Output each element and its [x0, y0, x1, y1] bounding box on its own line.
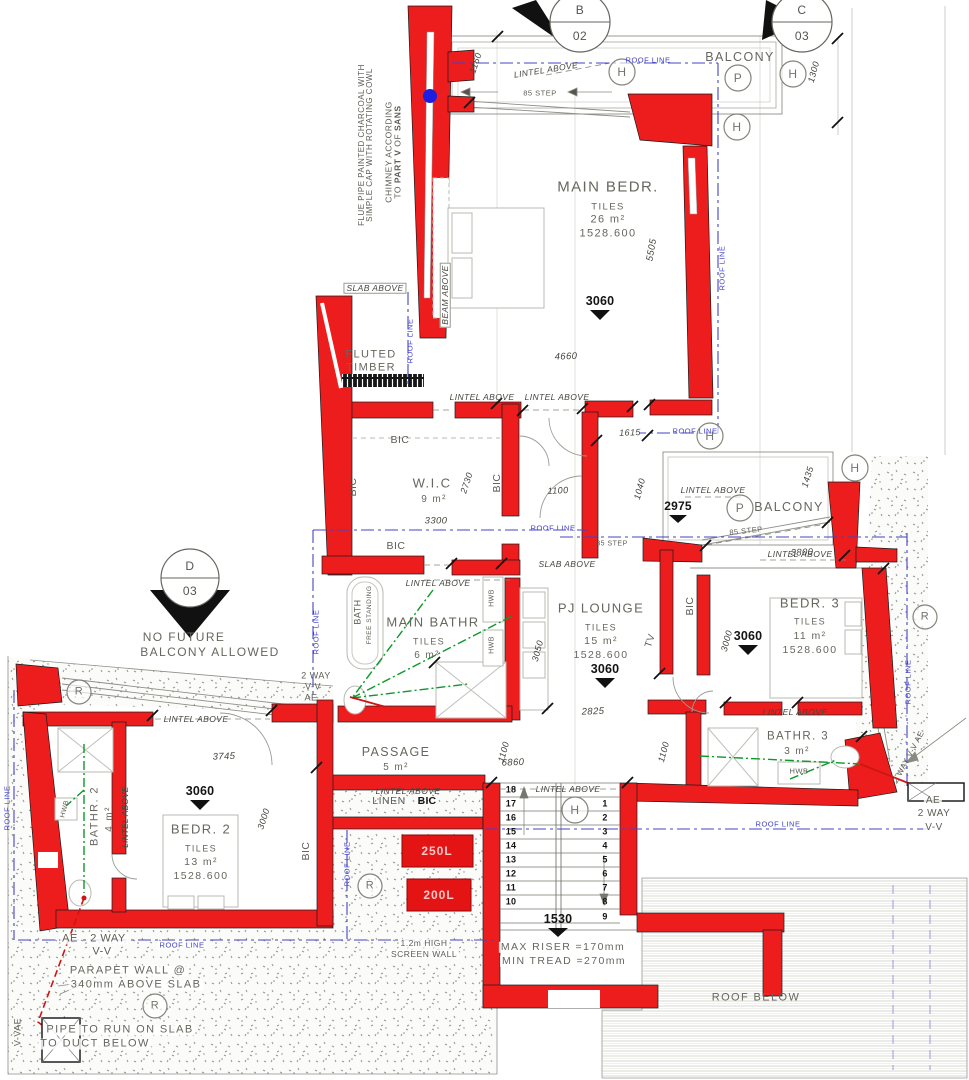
beam-above: BEAM ABOVE [440, 262, 451, 327]
bic-label: BIC [685, 596, 696, 615]
room-area: 5 m² [383, 763, 409, 773]
bic-label: BIC [386, 541, 405, 552]
room-label-wic: W.I.C [413, 477, 452, 490]
room-label-pj-lounge: PJ LOUNGE [558, 602, 644, 615]
ref-p: P [734, 72, 743, 84]
roof-line-label: ROOF LINE [718, 246, 726, 291]
level-2975: 2975 [664, 500, 692, 512]
room-area: 3 m² [784, 747, 810, 757]
tank-200l: 200L [423, 889, 454, 901]
dim-2825: 2825 [581, 707, 604, 717]
note-max-riser: MAX RISER =170mm [499, 942, 627, 953]
room-finish: TILES [413, 638, 445, 647]
stair-number: 15 [506, 828, 516, 837]
floor-plan: B 02 C 03 D 03 P P H H H H H H R R R R M… [0, 0, 969, 1080]
stair-number: 6 [602, 870, 607, 879]
roof-line-label: ROOF LINE [312, 610, 320, 655]
note-pipe-1: PIPE TO RUN ON SLAB [44, 1025, 195, 1036]
room-finish: TILES [591, 202, 624, 212]
lintel-above: LINTEL ABOVE [768, 550, 833, 559]
stair-number: 3 [602, 828, 607, 837]
stair-number: 4 [602, 842, 607, 851]
lintel-above: LINTEL ABOVE [450, 393, 515, 402]
note-chimney: CHIMNEY ACCORDING TO PART V OF SANS [385, 101, 402, 202]
roof-line-label: ROOF LINE [531, 524, 576, 532]
note-flue-line2: SIMPLE CAP WITH ROTATING COWL [366, 64, 374, 226]
vent-ae: AE [304, 694, 317, 703]
dim-3745: 3745 [212, 752, 235, 762]
bic-label: BIC [418, 796, 437, 807]
room-label-main-bath: MAIN BATHR [386, 616, 479, 629]
room-label-passage: PASSAGE [362, 746, 431, 759]
stair-number: 9 [602, 913, 607, 922]
section-marker-b-num: 02 [573, 30, 587, 42]
bic-label: BIC [492, 473, 503, 492]
note-parapet-1: PARAPET WALL @ [68, 966, 188, 977]
roof-line-label: ROOF LINE [904, 660, 912, 705]
roof-line-label: ROOF LINE [673, 427, 718, 435]
ref-r: R [921, 612, 929, 623]
note-fluted-2: TIMBER [346, 363, 396, 374]
lintel-above: LINTEL ABOVE [406, 579, 471, 588]
ref-r: R [75, 687, 83, 698]
room-level: 1528.600 [579, 229, 636, 240]
stair-number: 16 [506, 814, 516, 823]
stair-number: 14 [506, 842, 516, 851]
note-no-future-2: BALCONY ALLOWED [140, 646, 280, 658]
roof-line-label: ROOF LINE [3, 786, 11, 831]
note-fluted-1: FLUTED [345, 350, 396, 361]
room-label-balcony-right: BALCONY [754, 501, 824, 514]
dim-1615: 1615 [619, 428, 641, 438]
stair-number: 11 [506, 884, 516, 893]
hwb-label: HWB [790, 767, 809, 775]
stair-number: 2 [602, 814, 607, 823]
room-label-bedr3: BEDR. 3 [780, 597, 840, 610]
note-parapet-2: 340mm ABOVE SLAB [69, 980, 204, 991]
note-roof-below: ROOF BELOW [712, 993, 801, 1004]
hwb-label: HWB [489, 636, 496, 654]
stair-number: 12 [506, 870, 516, 879]
plan-linework [0, 0, 969, 1080]
stair-number: 18 [506, 786, 516, 795]
ref-r: R [366, 881, 374, 892]
ref-r: R [151, 1001, 159, 1012]
note-screen-2: SCREEN WALL [389, 950, 459, 959]
level-3060: 3060 [186, 785, 215, 798]
section-marker-d-letter: D [185, 560, 194, 572]
hwb-label: HWB [489, 589, 496, 607]
vent-vv: V-V [923, 823, 945, 833]
roof-line-label: ROOF LINE [626, 56, 671, 64]
note-flue: FLUE PIPE PAINTED CHARCOAL WITH SIMPLE C… [358, 64, 374, 226]
room-area: 6 m² [414, 651, 440, 661]
dim-4660: 4660 [554, 352, 577, 362]
vent-ae: AE [60, 934, 80, 945]
linen-label: LINEN [372, 796, 405, 807]
wc-bathr2 [69, 880, 91, 906]
vent-vv: V-V [90, 947, 113, 958]
vent-ae: AE [924, 796, 942, 806]
room-label-main-bedr: MAIN BEDR. [557, 180, 659, 195]
stair-number: 13 [506, 856, 516, 865]
level-1530: 1530 [544, 913, 573, 926]
note-no-future-1: NO FUTURE [143, 631, 226, 643]
room-area: 26 m² [590, 215, 625, 226]
ref-p: P [736, 502, 745, 514]
vent-vvae: V-VAE [14, 1018, 23, 1046]
vent-2way: 2 WAY [88, 934, 128, 945]
lintel-above: LINTEL ABOVE [536, 785, 601, 794]
room-label-bathr2: BATHR. 2 [90, 786, 101, 846]
section-markers [150, 0, 832, 638]
lintel-above: LINTEL ABOVE [763, 708, 828, 717]
bic-label: BIC [301, 841, 312, 860]
note-pipe-2: TO DUCT BELOW [38, 1039, 151, 1050]
step-85-label: 85 STEP [523, 89, 557, 97]
vent-vv: V-V [305, 683, 321, 692]
stair-number: 1 [602, 800, 607, 809]
lintel-above: LINTEL ABOVE [681, 486, 746, 495]
vent-2way: 2 WAY [916, 809, 953, 819]
room-area: 9 m² [421, 495, 447, 505]
note-min-tread: MIN TREAD =270mm [500, 956, 628, 967]
flue-marker-dot [423, 89, 437, 103]
note-bath-freestanding: FREE STANDING [367, 586, 374, 645]
room-area: 15 m² [584, 636, 618, 647]
note-chimney-line2: TO PART V OF SANS [393, 101, 402, 202]
note-screen-1: 1.2m HIGH [398, 939, 449, 948]
roof-line-label: ROOF LINE [406, 319, 414, 364]
section-marker-d-num: 03 [183, 585, 197, 597]
ref-h: H [788, 68, 797, 80]
room-level: 1528.600 [574, 650, 629, 661]
lintel-above: LINTEL ABOVE [164, 715, 229, 724]
lintel-above: LINTEL ABOVE [525, 393, 590, 402]
section-marker-c-letter: C [797, 4, 806, 16]
section-marker-b-letter: B [576, 4, 585, 16]
ref-h: H [617, 66, 626, 78]
level-3060: 3060 [586, 295, 615, 308]
stair-number: 5 [602, 856, 607, 865]
roof-line-label: ROOF LINE [343, 842, 351, 887]
room-label-bedr2: BEDR. 2 [171, 823, 231, 836]
room-area: 11 m² [793, 631, 826, 642]
stair-number: 17 [506, 800, 516, 809]
ref-h: H [570, 804, 579, 816]
stair-number: 8 [602, 898, 607, 907]
wc-bathr3 [831, 746, 859, 768]
slab-above: SLAB ABOVE [343, 283, 406, 294]
stair-number: 10 [506, 898, 516, 907]
dim-1100: 1100 [547, 486, 568, 496]
level-3060: 3060 [591, 663, 620, 676]
roof-line-label: ROOF LINE [754, 820, 803, 828]
fluted-timber-hatch [342, 374, 424, 387]
room-finish: TILES [185, 845, 217, 854]
bic-label: BIC [348, 477, 359, 496]
bic-label: BIC [390, 435, 409, 446]
tank-250l: 250L [421, 845, 452, 857]
room-area: 4 m² [105, 806, 115, 832]
step-85-label: 85 STEP [596, 541, 628, 548]
room-label-bathr3: BATHR. 3 [767, 731, 829, 743]
section-marker-c-num: 03 [795, 30, 809, 42]
stair-number: 7 [602, 884, 607, 893]
room-level: 1528.600 [783, 645, 838, 656]
room-level: 1528.600 [174, 871, 229, 882]
roof-below-area [602, 878, 967, 1078]
note-bath: BATH [354, 599, 363, 624]
level-3060: 3060 [734, 630, 763, 643]
ref-h: H [850, 462, 859, 474]
roof-line-label: ROOF LINE [158, 941, 207, 949]
vent-2way: 2 WAY [301, 672, 331, 681]
room-finish: TILES [794, 618, 826, 627]
lintel-above: LINTEL ABOVE [122, 786, 130, 847]
room-label-balcony-top: BALCONY [705, 51, 775, 64]
slab-above: SLAB ABOVE [538, 560, 595, 569]
room-area: 13 m² [184, 857, 218, 868]
ref-h: H [732, 121, 741, 133]
dim-3300: 3300 [425, 516, 448, 526]
room-finish: TILES [585, 624, 617, 633]
